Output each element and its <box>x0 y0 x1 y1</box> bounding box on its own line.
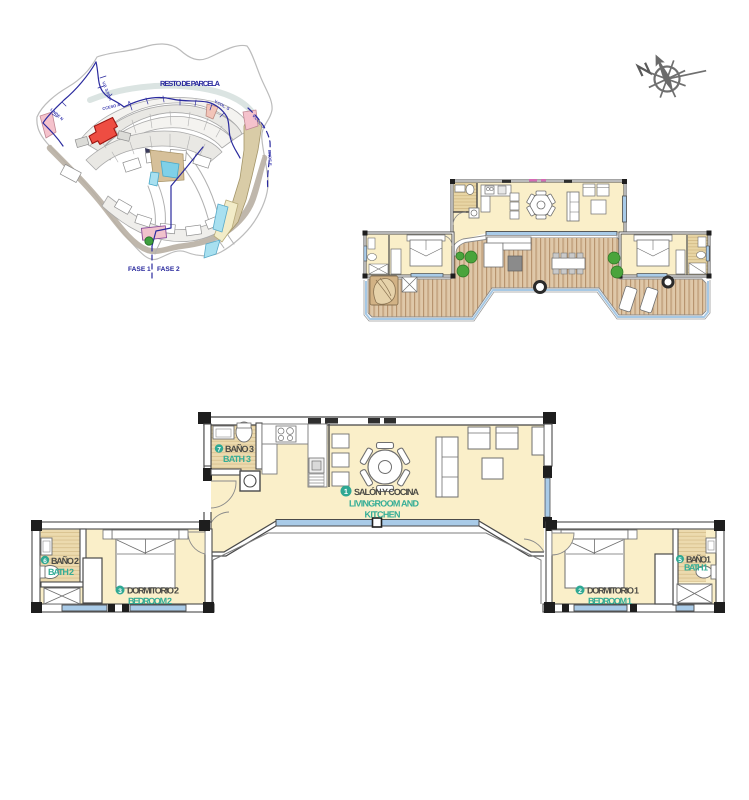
svg-text:BATH 1: BATH 1 <box>684 563 708 573</box>
svg-text:1: 1 <box>344 487 348 496</box>
svg-text:7: 7 <box>217 447 221 454</box>
svg-text:2: 2 <box>578 588 582 595</box>
svg-text:SALÓN Y COCINA: SALÓN Y COCINA <box>354 487 420 497</box>
svg-text:BATH 2: BATH 2 <box>48 567 74 577</box>
svg-text:FASE 2: FASE 2 <box>157 266 180 273</box>
svg-text:LIVINGROOM AND: LIVINGROOM AND <box>349 499 420 509</box>
svg-text:BEDROOM 1: BEDROOM 1 <box>588 596 632 606</box>
svg-text:RESTO DE PARCELA: RESTO DE PARCELA <box>160 79 221 88</box>
svg-text:6: 6 <box>43 558 47 565</box>
svg-text:BAÑO 3: BAÑO 3 <box>225 443 254 454</box>
svg-text:3: 3 <box>118 588 122 595</box>
svg-text:BAÑO 2: BAÑO 2 <box>51 555 79 566</box>
svg-text:BEDROOM 2: BEDROOM 2 <box>128 596 172 606</box>
svg-text:KITCHEN: KITCHEN <box>365 510 401 520</box>
svg-text:FASE 1: FASE 1 <box>128 266 151 273</box>
svg-text:BATH 3: BATH 3 <box>223 454 251 464</box>
svg-text:DORMITORIO 1: DORMITORIO 1 <box>587 586 639 596</box>
svg-text:5: 5 <box>678 557 682 564</box>
svg-text:DORMITORIO 2: DORMITORIO 2 <box>127 586 179 596</box>
